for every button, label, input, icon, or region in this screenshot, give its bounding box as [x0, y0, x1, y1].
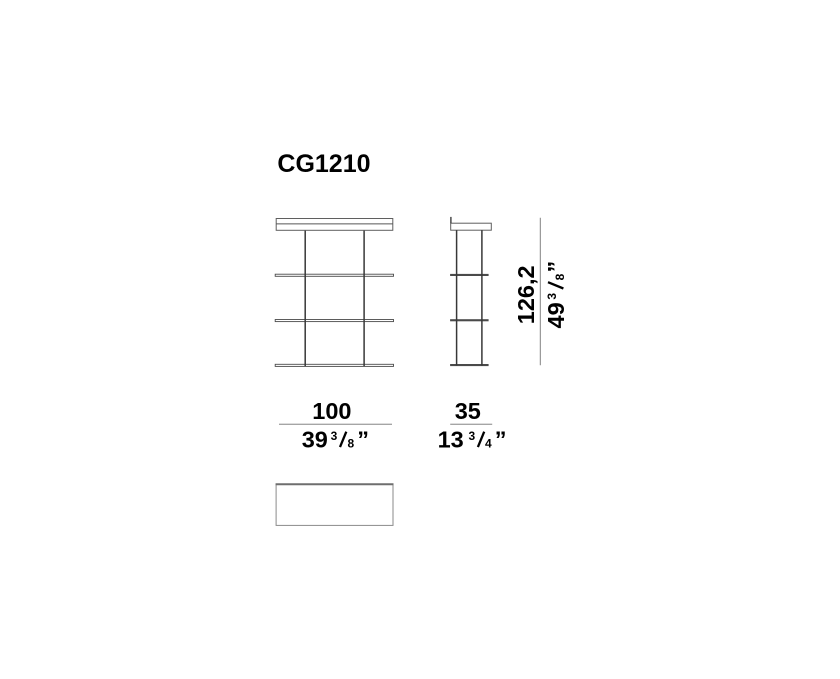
- svg-text:3: 3: [545, 293, 559, 300]
- svg-text:8: 8: [348, 437, 355, 451]
- svg-text:126,2: 126,2: [513, 265, 539, 324]
- svg-text:100: 100: [312, 398, 351, 424]
- svg-text:4: 4: [485, 437, 492, 451]
- svg-text:39: 39: [302, 427, 328, 453]
- svg-text:13: 13: [438, 427, 464, 453]
- svg-text:”: ”: [543, 261, 569, 273]
- svg-text:”: ”: [357, 427, 369, 453]
- svg-text:3: 3: [469, 429, 476, 443]
- svg-text:CG1210: CG1210: [277, 150, 370, 178]
- svg-text:49: 49: [543, 302, 569, 328]
- svg-text:3: 3: [331, 429, 338, 443]
- svg-text:35: 35: [455, 398, 481, 424]
- svg-text:8: 8: [553, 273, 567, 280]
- svg-text:”: ”: [495, 427, 507, 453]
